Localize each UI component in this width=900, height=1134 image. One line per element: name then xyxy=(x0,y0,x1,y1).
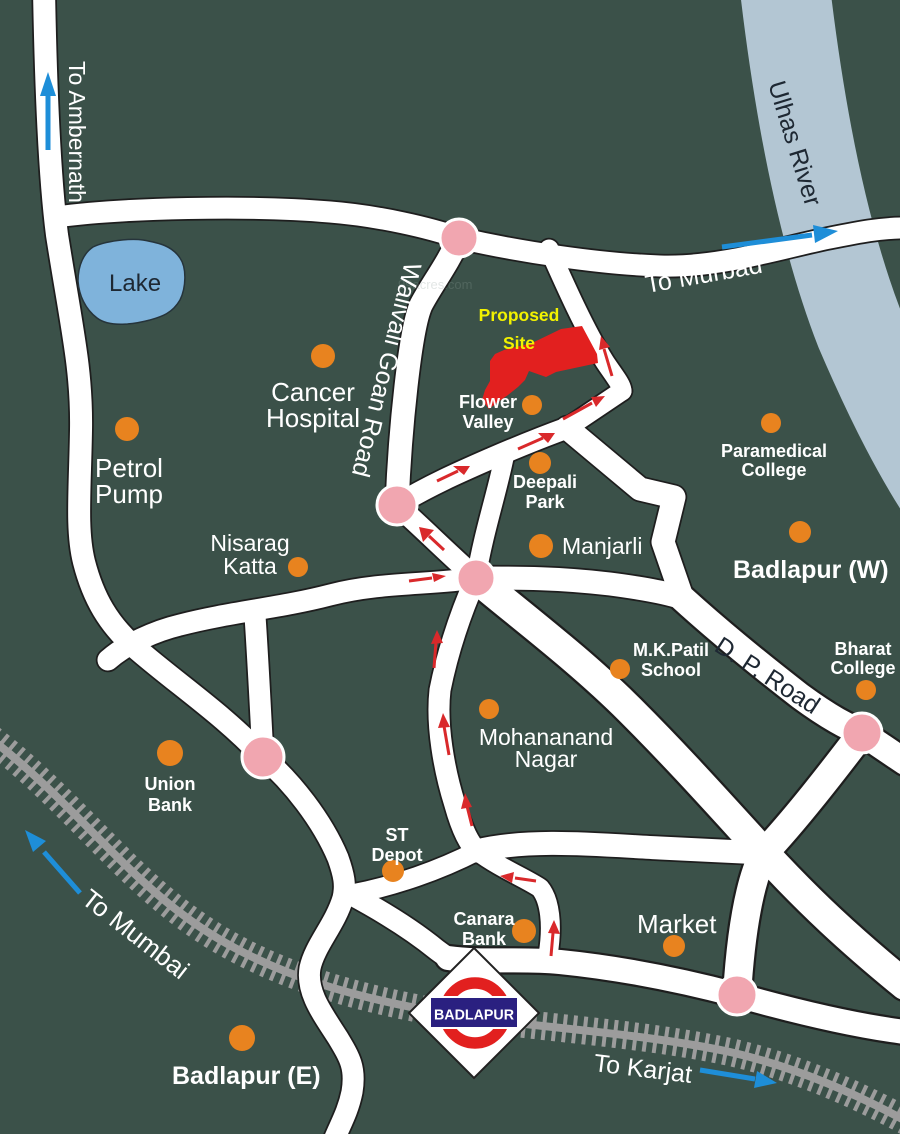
svg-text:Nagar: Nagar xyxy=(515,746,578,772)
svg-text:Paramedical: Paramedical xyxy=(721,441,827,461)
svg-text:Bank: Bank xyxy=(462,929,507,949)
svg-text:Lake: Lake xyxy=(109,270,161,297)
svg-text:BADLAPUR: BADLAPUR xyxy=(434,1007,514,1024)
svg-text:Bharat: Bharat xyxy=(834,639,891,659)
svg-text:Park: Park xyxy=(525,492,565,512)
svg-text:Valley: Valley xyxy=(462,412,513,432)
svg-text:College: College xyxy=(830,658,895,678)
svg-text:Deepali: Deepali xyxy=(513,472,577,492)
svg-text:Hospital: Hospital xyxy=(266,403,360,433)
svg-text:Manjarli: Manjarli xyxy=(562,533,643,559)
svg-text:College: College xyxy=(741,460,806,480)
svg-text:Site: Site xyxy=(503,333,535,353)
svg-text:School: School xyxy=(641,660,701,680)
svg-text:Market: Market xyxy=(637,909,717,939)
svg-text:ST: ST xyxy=(385,825,408,845)
svg-text:Flower: Flower xyxy=(459,392,517,412)
svg-text:Canara: Canara xyxy=(453,909,515,929)
svg-text:Proposed: Proposed xyxy=(479,305,560,325)
svg-text:Bank: Bank xyxy=(148,795,193,815)
svg-text:Katta: Katta xyxy=(223,553,277,579)
svg-text:Depot: Depot xyxy=(372,845,423,865)
svg-text:Union: Union xyxy=(145,774,196,794)
svg-text:Pump: Pump xyxy=(95,479,163,509)
svg-text:M.K.Patil: M.K.Patil xyxy=(633,640,709,660)
svg-text:Badlapur (E): Badlapur (E) xyxy=(172,1062,321,1090)
svg-text:Badlapur (W): Badlapur (W) xyxy=(733,556,889,584)
svg-text:To Ambernath: To Ambernath xyxy=(64,61,90,203)
